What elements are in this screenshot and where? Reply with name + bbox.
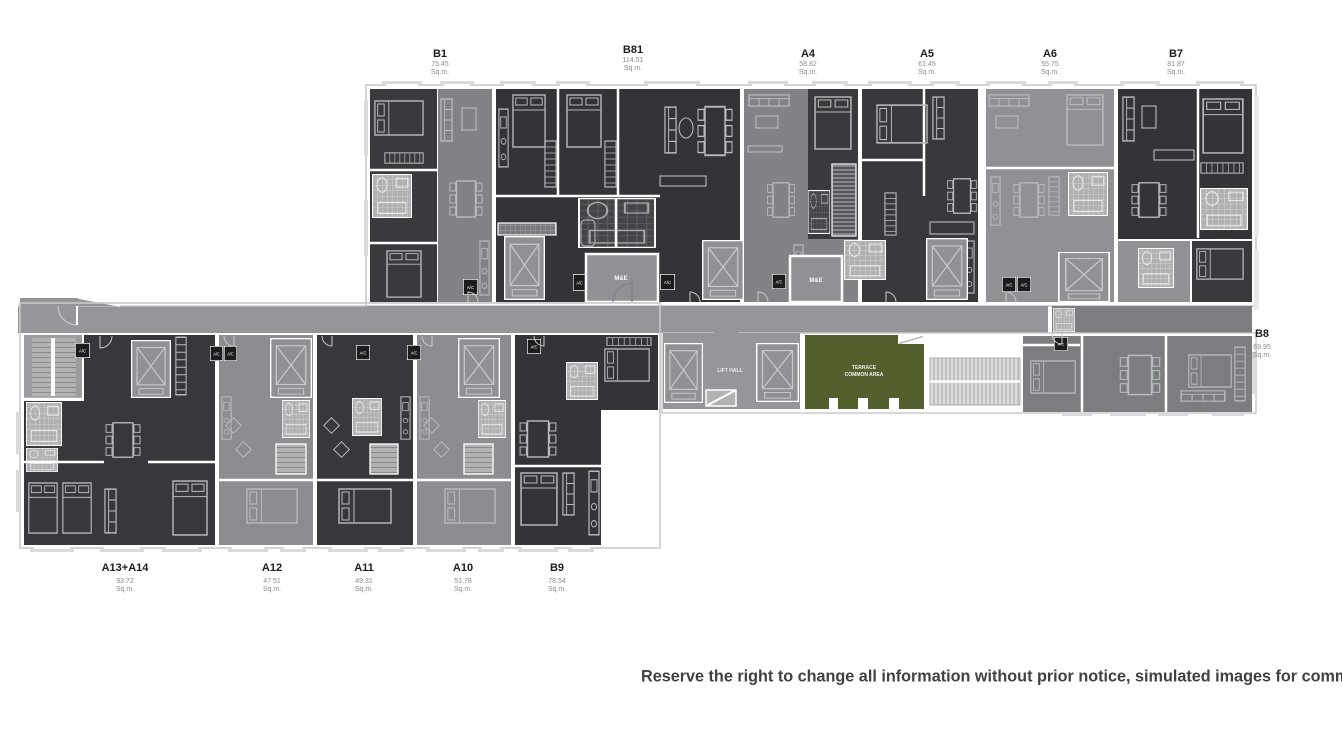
svg-text:Sq.m.: Sq.m. xyxy=(624,65,642,72)
svg-text:A13+A14: A13+A14 xyxy=(102,562,150,574)
svg-text:Sq.m.: Sq.m. xyxy=(1041,69,1059,76)
svg-text:Reserve the right to change al: Reserve the right to change all informat… xyxy=(641,667,1342,686)
svg-text:75.45: 75.45 xyxy=(431,61,449,68)
svg-text:B8: B8 xyxy=(1255,328,1269,340)
svg-text:A4: A4 xyxy=(801,48,816,60)
svg-text:B9: B9 xyxy=(550,562,564,574)
svg-text:A10: A10 xyxy=(453,562,473,574)
svg-text:47.51: 47.51 xyxy=(263,578,281,585)
svg-text:A6: A6 xyxy=(1043,48,1057,60)
svg-text:114.51: 114.51 xyxy=(623,57,644,64)
svg-text:Sq.m.: Sq.m. xyxy=(431,69,449,76)
svg-text:Sq.m.: Sq.m. xyxy=(1253,352,1271,359)
svg-text:Sq.m.: Sq.m. xyxy=(355,586,373,593)
svg-text:B81: B81 xyxy=(623,44,643,56)
svg-text:Sq.m.: Sq.m. xyxy=(1167,69,1185,76)
svg-text:Sq.m.: Sq.m. xyxy=(548,586,566,593)
svg-text:Sq.m.: Sq.m. xyxy=(918,69,936,76)
svg-text:Sq.m.: Sq.m. xyxy=(799,69,817,76)
svg-text:B7: B7 xyxy=(1169,48,1183,60)
svg-text:61.45: 61.45 xyxy=(918,61,936,68)
svg-text:A11: A11 xyxy=(354,562,374,574)
svg-text:COMMON AREA: COMMON AREA xyxy=(845,372,884,378)
svg-text:93.72: 93.72 xyxy=(116,578,134,585)
svg-text:Sq.m.: Sq.m. xyxy=(454,586,472,593)
svg-text:51.78: 51.78 xyxy=(454,578,472,585)
svg-text:M&E: M&E xyxy=(614,276,627,282)
svg-text:49.31: 49.31 xyxy=(355,578,373,585)
svg-text:Sq.m.: Sq.m. xyxy=(116,586,134,593)
svg-text:M&E: M&E xyxy=(809,278,822,284)
svg-text:A5: A5 xyxy=(920,48,934,60)
svg-text:A12: A12 xyxy=(262,562,282,574)
svg-text:58.82: 58.82 xyxy=(799,61,817,68)
svg-text:69.95: 69.95 xyxy=(1253,344,1271,351)
svg-text:78.54: 78.54 xyxy=(548,578,566,585)
svg-text:Sq.m.: Sq.m. xyxy=(263,586,281,593)
svg-text:B1: B1 xyxy=(433,48,447,60)
svg-text:81.87: 81.87 xyxy=(1167,61,1185,68)
svg-text:TERRACE: TERRACE xyxy=(852,365,877,371)
svg-text:LIFT HALL: LIFT HALL xyxy=(717,368,742,374)
svg-text:55.75: 55.75 xyxy=(1041,61,1059,68)
